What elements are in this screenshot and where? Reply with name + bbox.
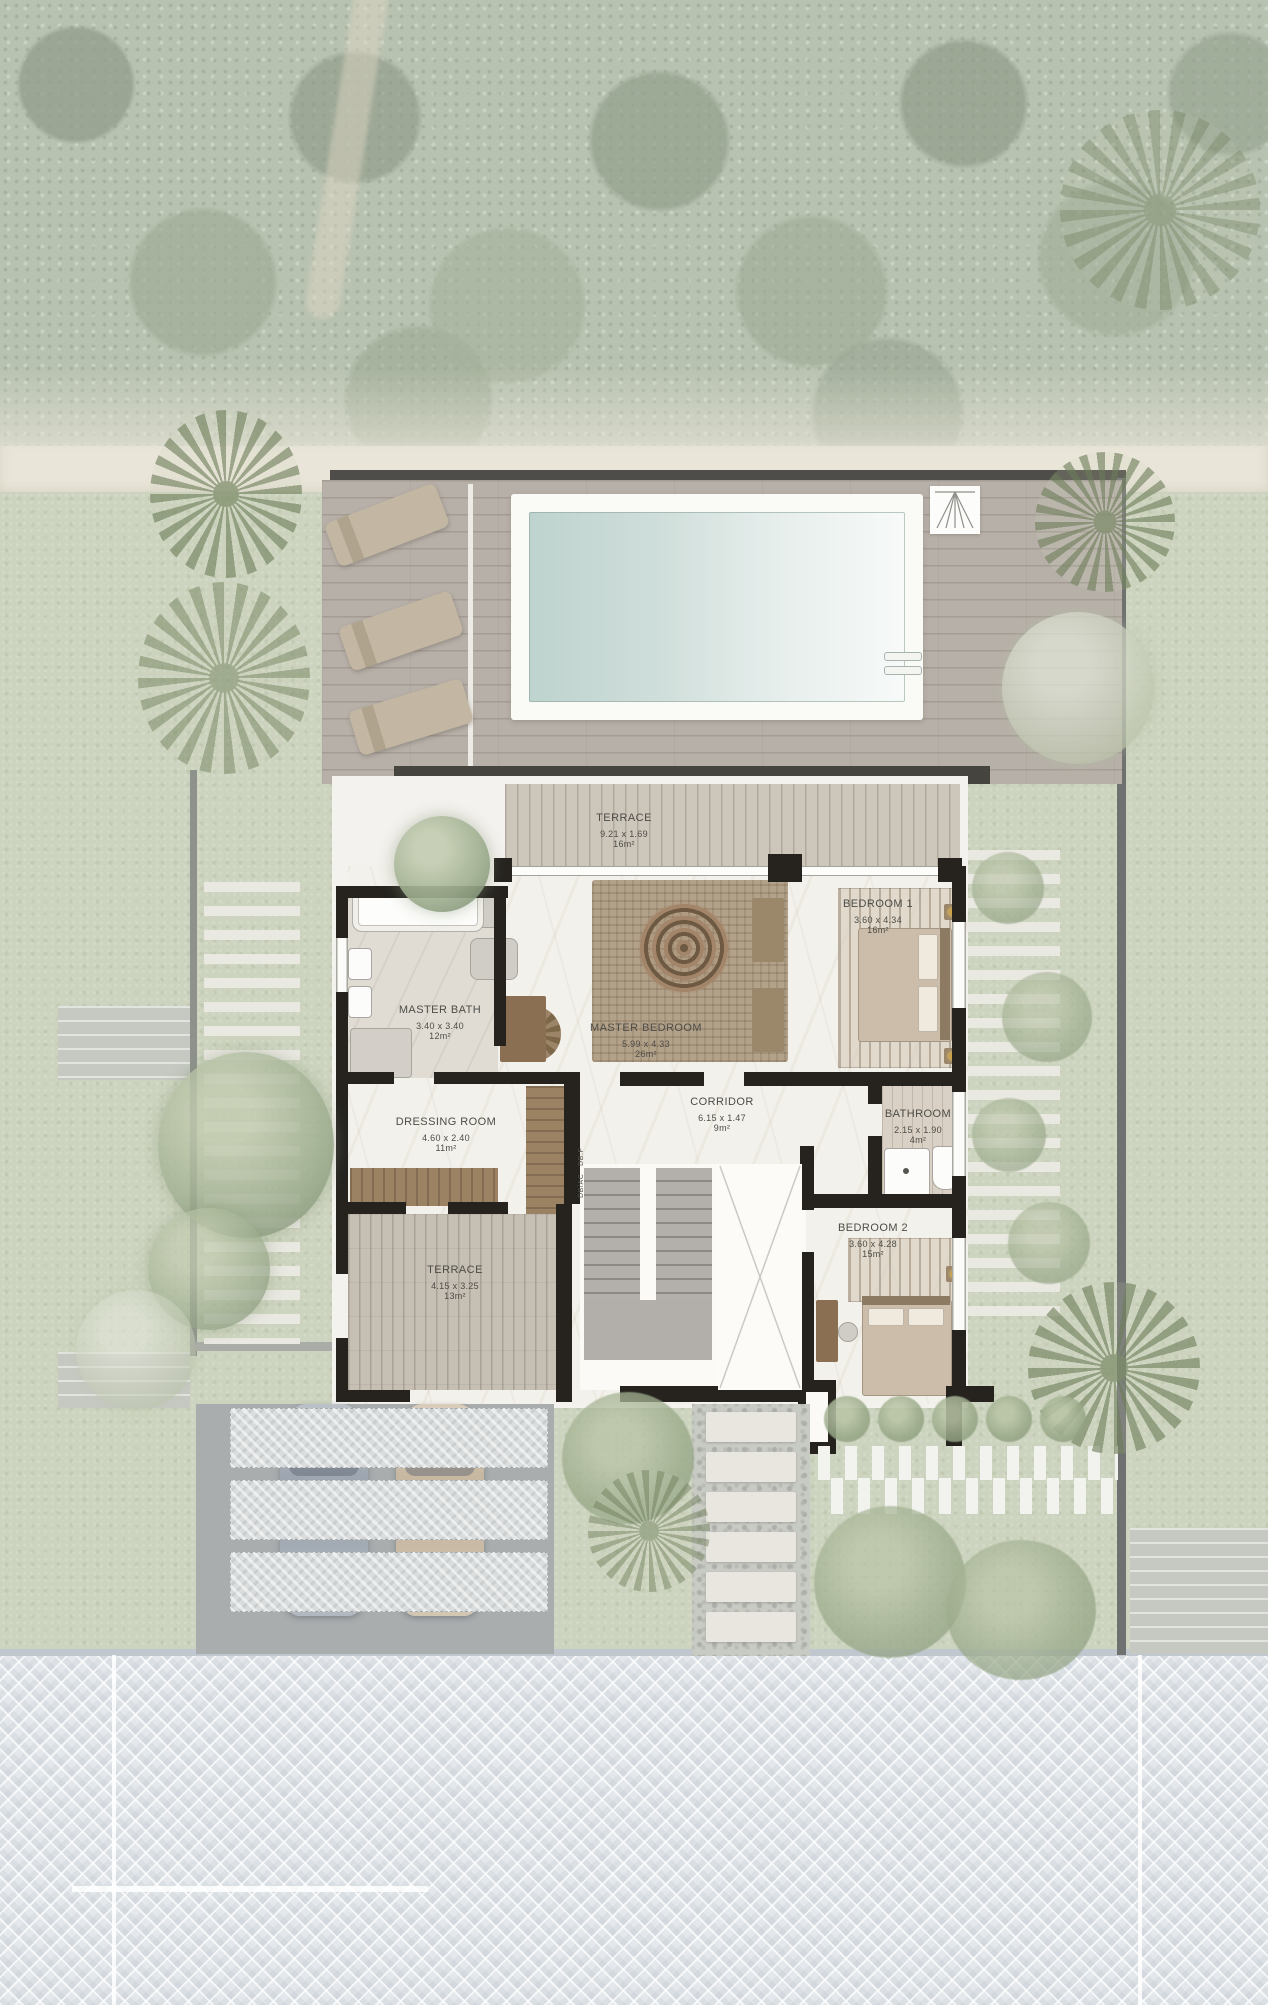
room-name: TERRACE	[558, 812, 690, 824]
floor-plan-canvas: TERRACE 9.21 x 1.69 16m² MASTER BEDROOM …	[0, 0, 1268, 2005]
sliding-glass-doors	[510, 866, 942, 876]
pool-ladder-icon	[884, 666, 922, 675]
hedge-shrub	[824, 1396, 870, 1442]
wall-pier	[768, 854, 802, 882]
wall	[434, 1072, 580, 1084]
room-name: BATHROOM	[858, 1108, 978, 1120]
palm-tree	[138, 582, 310, 774]
label-dressing-room: DRESSING ROOM 4.60 x 2.40 11m²	[370, 1116, 522, 1153]
outdoor-shower-icon	[930, 486, 980, 534]
tree	[158, 1052, 334, 1238]
wall	[952, 1176, 966, 1238]
stepping-stone	[706, 1532, 796, 1562]
pale-tree	[76, 1290, 196, 1410]
pillow	[908, 1308, 944, 1326]
room-area: 9m²	[652, 1123, 792, 1133]
road-joint-line	[1138, 1655, 1142, 2005]
pergola-slat	[230, 1480, 548, 1540]
toilet	[348, 948, 372, 980]
pool-water	[529, 512, 905, 702]
stepping-stone	[706, 1612, 796, 1642]
faucet-dot	[903, 1168, 909, 1174]
window	[952, 922, 966, 1008]
bedroom1-headboard	[940, 928, 950, 1040]
room-area: 4m²	[858, 1135, 978, 1145]
room-area: 15m²	[812, 1249, 934, 1259]
deck-seam	[468, 484, 473, 782]
road-marking	[72, 1886, 428, 1892]
forest-palm	[1060, 110, 1260, 310]
hedge-shrub	[932, 1396, 978, 1442]
label-master-bedroom: MASTER BEDROOM 5.99 x 4.33 26m²	[568, 1022, 724, 1059]
window	[952, 1238, 966, 1330]
palm-tree	[150, 410, 302, 578]
wall	[744, 1072, 966, 1086]
bush	[1008, 1202, 1090, 1284]
room-name: BEDROOM 2	[812, 1222, 934, 1234]
palm-tree	[1035, 452, 1175, 592]
bush	[1002, 972, 1092, 1062]
pillow	[918, 986, 938, 1032]
room-area: 11m²	[370, 1143, 522, 1153]
neighbor-pad	[1130, 1528, 1268, 1654]
room-dims: 9.21 x 1.69	[558, 829, 690, 839]
room-dims: 6.15 x 1.47	[652, 1113, 792, 1123]
stepping-stone	[706, 1572, 796, 1602]
side-path-slabs	[58, 1006, 190, 1080]
room-name: MASTER BEDROOM	[568, 1022, 724, 1034]
room-area: 26m²	[568, 1049, 724, 1059]
wall	[556, 1204, 572, 1402]
bush	[946, 1540, 1096, 1680]
pale-tree	[1002, 612, 1154, 764]
room-dims: 3.40 x 3.40	[368, 1021, 512, 1031]
wall	[800, 1194, 966, 1208]
wall	[336, 886, 348, 938]
desk-chair	[838, 1322, 858, 1342]
wall	[448, 1202, 508, 1214]
hedge-shrub	[1040, 1396, 1086, 1442]
wall	[336, 1202, 348, 1274]
pillow	[918, 934, 938, 980]
bedroom2-headboard	[862, 1296, 950, 1305]
wall	[620, 1072, 704, 1086]
window	[336, 938, 348, 992]
dressing-wardrobe	[350, 1168, 498, 1206]
pergola-slat	[230, 1408, 548, 1468]
room-area: 13m²	[384, 1291, 526, 1301]
room-dims: 4.15 x 3.25	[384, 1281, 526, 1291]
label-bedroom-1: BEDROOM 1 3.60 x 4.34 16m²	[816, 898, 940, 935]
bush	[972, 852, 1044, 924]
hedge-shrub	[878, 1396, 924, 1442]
pillow	[868, 1308, 904, 1326]
room-dims: 2.15 x 1.90	[858, 1125, 978, 1135]
utility-label: DB/AC DB.F	[578, 1148, 585, 1198]
wall-pier	[494, 858, 512, 882]
lounge-medallion	[638, 902, 730, 994]
label-terrace-bottom: TERRACE 4.15 x 3.25 13m²	[384, 1264, 526, 1301]
bush	[814, 1506, 966, 1658]
room-name: BEDROOM 1	[816, 898, 940, 910]
lounge-bench	[752, 988, 784, 1052]
courtyard-tree	[394, 816, 490, 912]
stairs-gap	[640, 1168, 656, 1288]
label-master-bath: MASTER BATH 3.40 x 3.40 12m²	[368, 1004, 512, 1041]
room-dims: 5.99 x 4.33	[568, 1039, 724, 1049]
label-bathroom: BATHROOM 2.15 x 1.90 4m²	[858, 1108, 978, 1145]
room-dims: 3.60 x 4.28	[812, 1239, 934, 1249]
wall	[868, 1086, 882, 1104]
room-dims: 4.60 x 2.40	[370, 1133, 522, 1143]
wall	[336, 992, 348, 1218]
room-name: TERRACE	[384, 1264, 526, 1276]
stepping-stone	[706, 1492, 796, 1522]
pergola-slat	[230, 1552, 548, 1612]
double-height-void	[718, 1164, 802, 1390]
dressing-wardrobe	[526, 1086, 566, 1214]
label-terrace-top: TERRACE 9.21 x 1.69 16m²	[558, 812, 690, 849]
room-name: CORRIDOR	[652, 1096, 792, 1108]
room-area: 16m²	[816, 925, 940, 935]
slat-walkway	[818, 1446, 1118, 1480]
stairs-flight	[584, 1168, 640, 1300]
label-corridor: CORRIDOR 6.15 x 1.47 9m²	[652, 1096, 792, 1133]
wall	[952, 866, 966, 922]
palm-tree	[588, 1470, 710, 1592]
room-name: MASTER BATH	[368, 1004, 512, 1016]
room-area: 16m²	[558, 839, 690, 849]
paved-road	[0, 1655, 1268, 2005]
lounge-bench	[752, 898, 784, 962]
wall	[952, 1008, 966, 1092]
stepping-stone	[706, 1452, 796, 1482]
stairs-flight	[656, 1168, 712, 1300]
road-joint-line	[112, 1655, 116, 2005]
room-dims: 3.60 x 4.34	[816, 915, 940, 925]
room-terrace-bottom	[348, 1214, 556, 1390]
wall	[336, 1072, 394, 1084]
desk	[816, 1300, 838, 1362]
label-bedroom-2: BEDROOM 2 3.60 x 4.28 15m²	[812, 1222, 934, 1259]
room-name: DRESSING ROOM	[370, 1116, 522, 1128]
hedge-shrub	[986, 1396, 1032, 1442]
room-area: 12m²	[368, 1031, 512, 1041]
wall	[336, 1390, 410, 1402]
pool-ladder-icon	[884, 652, 922, 661]
bush	[972, 1098, 1046, 1172]
wall	[800, 1146, 814, 1210]
stepping-stone	[706, 1412, 796, 1442]
stairs-landing	[584, 1300, 712, 1360]
